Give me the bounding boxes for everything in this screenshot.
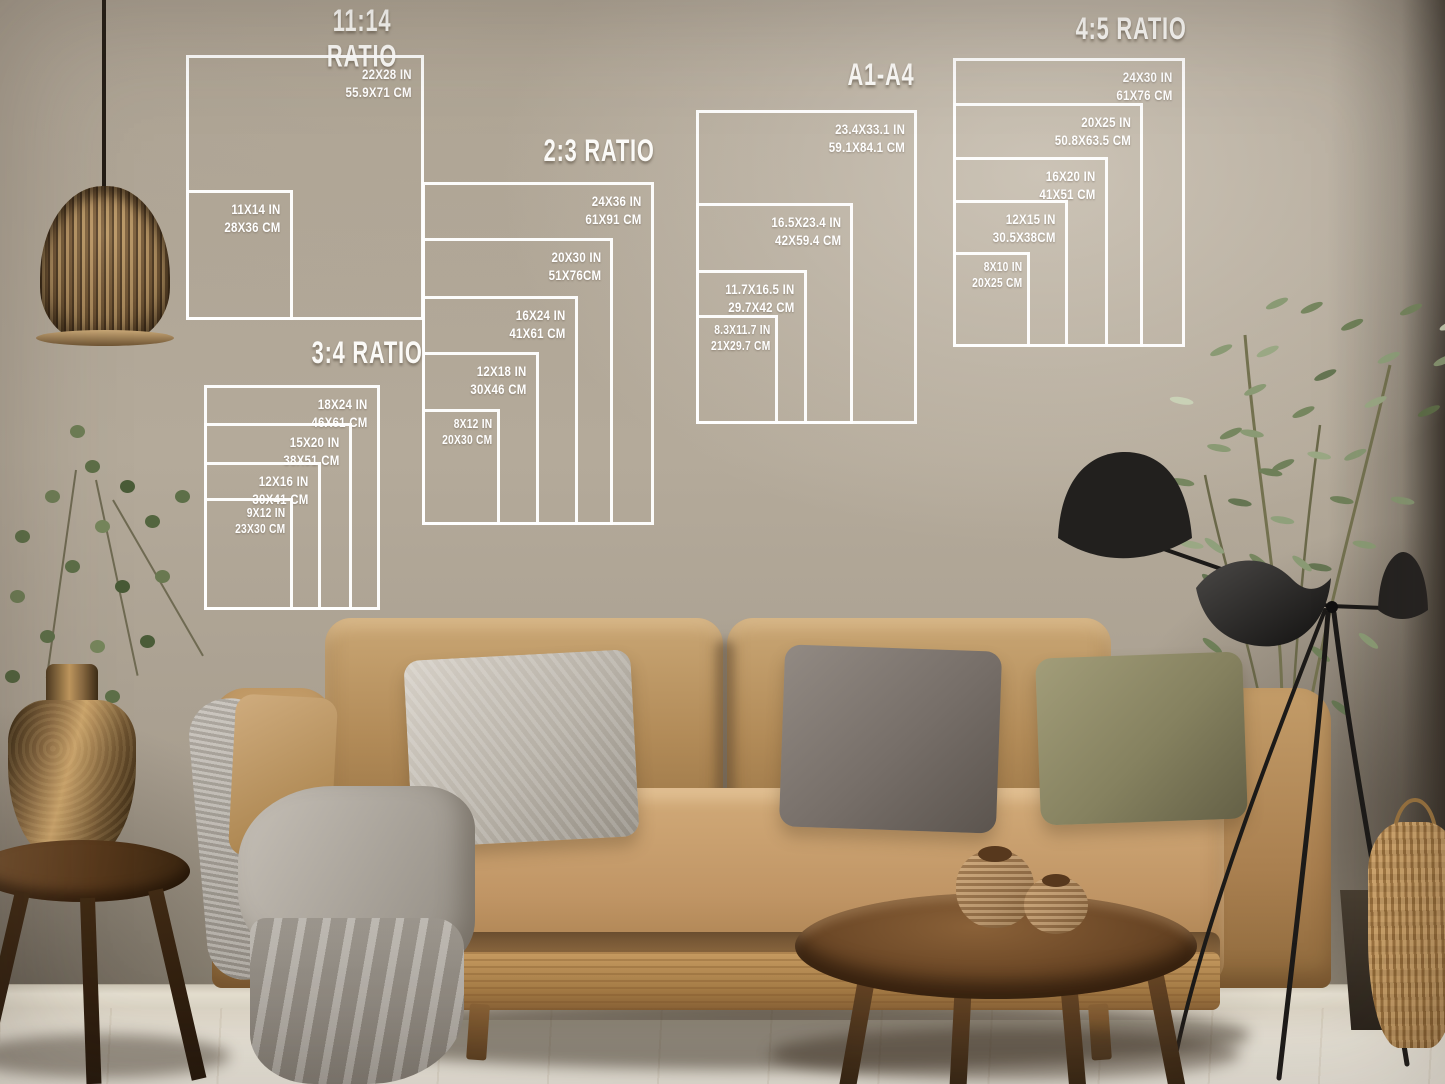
size-inches: 12X16 IN: [253, 472, 309, 490]
size-rect-8x10: 8X10 IN20X25 CM: [953, 252, 1030, 347]
lamp-hub: [1326, 601, 1338, 613]
size-cm: 61X91 CM: [586, 210, 642, 228]
group-title-text: 4:5 RATIO: [1076, 12, 1187, 47]
size-inches: 24X36 IN: [586, 192, 642, 210]
group-title-text: 2:3 RATIO: [544, 134, 655, 169]
size-cm: 42X59.4 CM: [771, 231, 841, 249]
size-cm: 21X29.7 CM: [711, 338, 770, 354]
size-inches: 12X18 IN: [471, 362, 527, 380]
size-inches: 20X25 IN: [1055, 113, 1131, 131]
size-rect-11x14: 11X14 IN28X36 CM: [186, 190, 293, 320]
lamp-leg: [1177, 610, 1325, 1050]
size-label: 9X12 IN23X30 CM: [235, 505, 285, 538]
size-label: 11X14 IN28X36 CM: [225, 200, 281, 236]
size-label: 23.4X33.1 IN59.1X84.1 CM: [829, 120, 905, 156]
size-cm: 23X30 CM: [235, 521, 285, 537]
size-inches: 24X30 IN: [1117, 68, 1173, 86]
size-label: 22X28 IN55.9X71 CM: [346, 65, 412, 101]
size-rect-a4: 8.3X11.7 IN21X29.7 CM: [696, 315, 778, 424]
size-label: 16X20 IN41X51 CM: [1040, 167, 1096, 203]
size-cm: 30.5X38CM: [993, 228, 1056, 246]
sofa-leg: [466, 1003, 490, 1060]
size-cm: 20X30 CM: [442, 432, 492, 448]
lamp-leg: [1279, 613, 1328, 1078]
size-inches: 11X14 IN: [225, 200, 281, 218]
size-cm: 29.7X42 CM: [726, 298, 795, 316]
eucalyptus-leaves: [85, 460, 100, 473]
lamp-shade-dome-small: [1378, 552, 1428, 619]
woven-basket: [1368, 822, 1445, 1048]
group-title-text: 3:4 RATIO: [312, 336, 423, 371]
size-cm: 61X76 CM: [1117, 86, 1173, 104]
size-inches: 15X20 IN: [284, 433, 340, 451]
size-label: 8X12 IN20X30 CM: [442, 416, 492, 449]
lamp-shade-swoosh: [1196, 560, 1331, 646]
living-room-size-guide-mockup: 11:14 RATIO 22X28 IN55.9X71 CM 11X14 IN2…: [0, 0, 1445, 1084]
size-label: 20X25 IN50.8X63.5 CM: [1055, 113, 1131, 149]
size-inches: 8.3X11.7 IN: [711, 322, 770, 338]
group-title-text: A1-A4: [847, 58, 914, 93]
size-label: 24X36 IN61X91 CM: [586, 192, 642, 228]
bronze-vase: [8, 700, 136, 862]
size-label: 8X10 IN20X25 CM: [972, 259, 1022, 292]
size-label: 8.3X11.7 IN21X29.7 CM: [711, 322, 770, 355]
size-inches: 16X20 IN: [1040, 167, 1096, 185]
size-cm: 59.1X84.1 CM: [829, 138, 905, 156]
pillow-charcoal: [779, 644, 1002, 833]
pendant-lamp-cord: [102, 0, 106, 194]
table-vase-small-mouth: [1042, 874, 1070, 887]
size-inches: 16.5X23.4 IN: [771, 213, 841, 231]
size-inches: 22X28 IN: [346, 65, 412, 83]
size-inches: 18X24 IN: [312, 395, 368, 413]
size-label: 16X24 IN41X61 CM: [510, 306, 566, 342]
size-rect-9x12: 9X12 IN23X30 CM: [204, 498, 293, 610]
size-label: 16.5X23.4 IN42X59.4 CM: [771, 213, 841, 249]
size-rect-8x12: 8X12 IN20X30 CM: [422, 409, 500, 525]
size-inches: 11.7X16.5 IN: [726, 280, 795, 298]
size-cm: 55.9X71 CM: [346, 83, 412, 101]
size-label: 12X18 IN30X46 CM: [471, 362, 527, 398]
blanket-hanging: [250, 918, 464, 1084]
size-label: 24X30 IN61X76 CM: [1117, 68, 1173, 104]
size-cm: 51X76CM: [548, 266, 601, 284]
size-inches: 12X15 IN: [993, 210, 1056, 228]
size-cm: 30X46 CM: [471, 380, 527, 398]
size-label: 20X30 IN51X76CM: [548, 248, 601, 284]
size-cm: 41X61 CM: [510, 324, 566, 342]
size-inches: 20X30 IN: [548, 248, 601, 266]
size-inches: 9X12 IN: [235, 505, 285, 521]
size-label: 11.7X16.5 IN29.7X42 CM: [726, 280, 795, 316]
lamp-shade-dome-large: [1058, 452, 1192, 558]
size-inches: 8X10 IN: [972, 259, 1022, 275]
pendant-lamp-rim: [36, 330, 174, 346]
size-inches: 23.4X33.1 IN: [829, 120, 905, 138]
size-label: 12X15 IN30.5X38CM: [993, 210, 1056, 246]
size-inches: 16X24 IN: [510, 306, 566, 324]
size-cm: 50.8X63.5 CM: [1055, 131, 1131, 149]
size-cm: 28X36 CM: [225, 218, 281, 236]
size-cm: 20X25 CM: [972, 275, 1022, 291]
table-vase-large-mouth: [978, 846, 1012, 862]
size-inches: 8X12 IN: [442, 416, 492, 432]
